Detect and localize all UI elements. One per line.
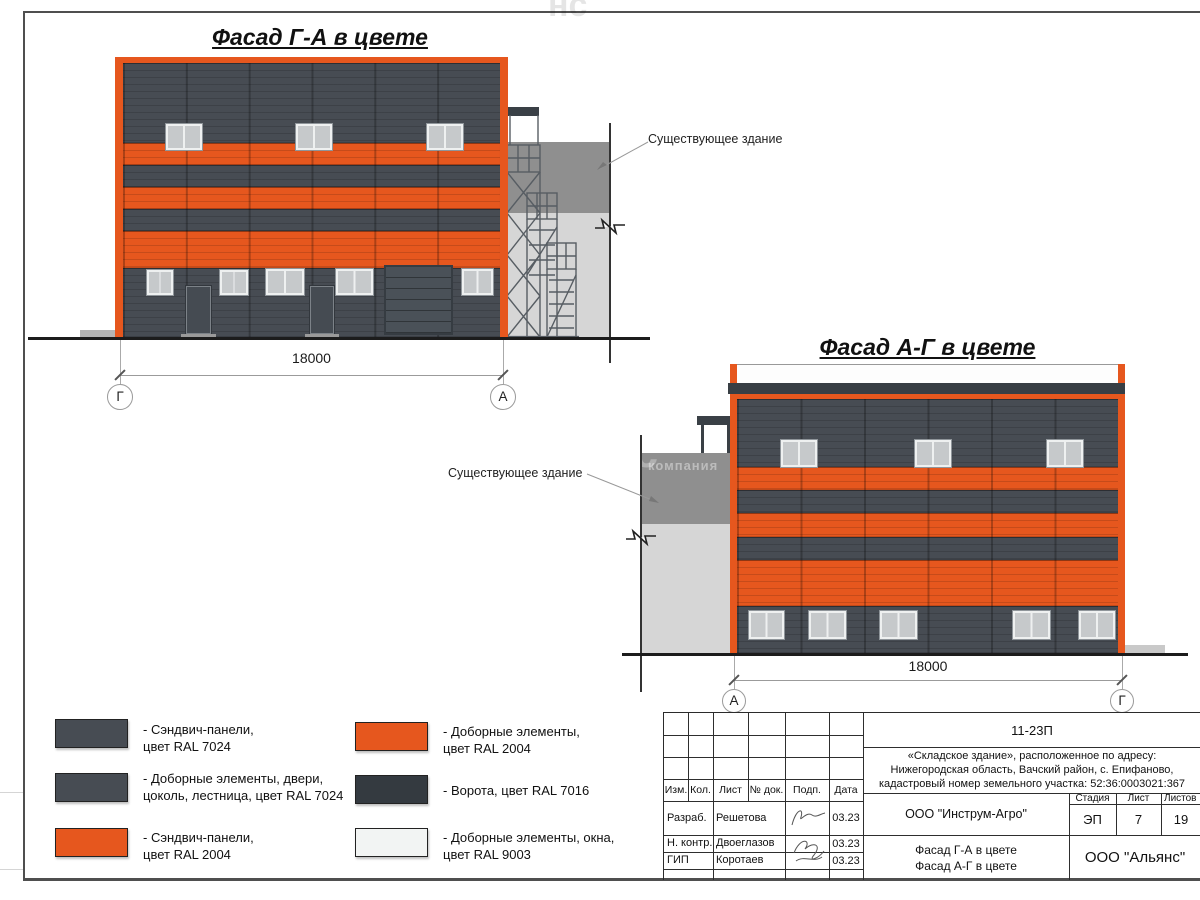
tb-sheet-value: 7	[1116, 804, 1161, 835]
door	[310, 286, 334, 334]
window	[266, 269, 304, 295]
ramp	[80, 330, 115, 337]
building1-right-trim	[500, 57, 508, 337]
tb-header-doc: № док.	[748, 779, 785, 801]
tb-stage-value: ЭП	[1069, 804, 1116, 835]
frame-left-line	[23, 11, 25, 880]
signature	[786, 801, 829, 869]
window	[1079, 611, 1115, 639]
facade-ag-title: Фасад А-Г в цвете	[730, 334, 1125, 361]
gate	[384, 265, 453, 335]
drawing-sheet: нс Фасад Г-А в цвете	[0, 0, 1200, 900]
building1-left-trim	[115, 57, 123, 337]
legend-swatch-ral2004	[55, 828, 128, 857]
tb-name: Двоеглазов	[716, 835, 785, 852]
legend-label: - Сэндвич-панели, цвет RAL 2004	[143, 830, 254, 864]
tb-sheets-value: 19	[1161, 804, 1200, 835]
window	[1013, 611, 1050, 639]
door	[186, 286, 211, 334]
window	[427, 124, 463, 150]
extension-line	[1122, 656, 1123, 689]
legend-swatch-ral7024	[55, 719, 128, 748]
tb-role: Н. контр.	[667, 835, 713, 852]
tb-header-izm: Изм.	[664, 779, 688, 801]
window	[462, 269, 493, 295]
dimension-line	[120, 375, 503, 376]
break-symbol	[595, 217, 625, 237]
window	[749, 611, 784, 639]
panel-joints	[737, 399, 1118, 653]
window	[915, 440, 951, 467]
tb-header-kol: Кол.	[688, 779, 713, 801]
legend-swatch-ral2004	[355, 722, 428, 751]
legend-label: - Сэндвич-панели, цвет RAL 7024	[143, 722, 254, 756]
legend-label: - Доборные элементы, окна, цвет RAL 9003	[443, 830, 614, 864]
tb-date: 03.23	[829, 852, 863, 869]
window	[166, 124, 202, 150]
grid-line	[664, 735, 863, 736]
building2-left-trim	[730, 364, 737, 653]
legend-label: - Доборные элементы, цвет RAL 2004	[443, 724, 580, 758]
tb-header-list: Лист	[713, 779, 748, 801]
tb-header-data: Дата	[829, 779, 863, 801]
dimension-line	[734, 680, 1122, 681]
margin-mark	[0, 792, 23, 793]
tb-name: Коротаев	[716, 852, 785, 869]
axis-mark: Г	[107, 384, 133, 410]
ground-line	[28, 337, 650, 340]
existing-building-label: Существующее здание	[448, 466, 582, 480]
axis-mark: А	[490, 384, 516, 410]
tb-sheets-header: Листов	[1164, 793, 1200, 804]
legend-label: - Доборные элементы, двери, цоколь, лест…	[143, 771, 343, 805]
margin-mark	[0, 869, 23, 870]
legend-label: - Ворота, цвет RAL 7016	[443, 783, 589, 800]
axis-mark: Г	[1110, 689, 1134, 713]
dimension-value: 18000	[120, 350, 503, 366]
legend-swatch-ral7024	[55, 773, 128, 802]
legend-swatch-ral9003	[355, 828, 428, 857]
break-symbol	[626, 528, 656, 548]
window	[809, 611, 846, 639]
tb-role: ГИП	[667, 852, 713, 869]
dimension-value: 18000	[734, 658, 1122, 674]
parapet-band	[728, 383, 1125, 394]
extension-line	[503, 340, 504, 384]
window	[781, 440, 817, 467]
leader-line	[585, 468, 665, 510]
tb-date: 03.23	[829, 801, 863, 835]
window	[880, 611, 917, 639]
window	[1047, 440, 1083, 467]
tb-sheet-header: Лист	[1116, 793, 1161, 804]
ramp	[1125, 645, 1165, 653]
tb-project-address: «Складское здание», расположенное по адр…	[866, 747, 1198, 793]
grid-line	[664, 757, 863, 758]
grid-line	[664, 869, 863, 870]
tb-header-podp: Подп.	[785, 779, 829, 801]
tb-role: Разраб.	[667, 801, 713, 835]
tb-sheet-subject: Фасад Г-А в цвете Фасад А-Г в цвете	[863, 835, 1069, 880]
tb-project-code: 11-23П	[863, 713, 1200, 747]
tb-stage-header: Стадия	[1069, 793, 1116, 804]
building2-top-band	[737, 365, 1118, 383]
existing-building-label: Существующее здание	[648, 132, 782, 146]
legend-swatch-ral7016	[355, 775, 428, 804]
window	[147, 270, 173, 295]
tb-org-customer: ООО "Инструм-Агро"	[863, 793, 1069, 835]
building2-right-trim	[1118, 364, 1125, 653]
canopy-roof	[697, 416, 733, 425]
stair-tower	[505, 115, 579, 339]
frame-top-line	[23, 11, 1200, 13]
facade-ga-title: Фасад Г-А в цвете	[130, 24, 510, 51]
ground-line	[622, 653, 1188, 656]
window	[296, 124, 332, 150]
tb-date: 03.23	[829, 835, 863, 852]
window	[336, 269, 373, 295]
leader-line	[592, 138, 650, 176]
tb-name: Решетова	[716, 801, 785, 835]
title-block: Изм. Кол. Лист № док. Подп. Дата Разраб.…	[663, 712, 1200, 880]
window	[220, 270, 248, 295]
tb-org-contractor: ООО "Альянс"	[1069, 835, 1200, 880]
canopy-post	[701, 425, 704, 453]
axis-mark: А	[722, 689, 746, 713]
